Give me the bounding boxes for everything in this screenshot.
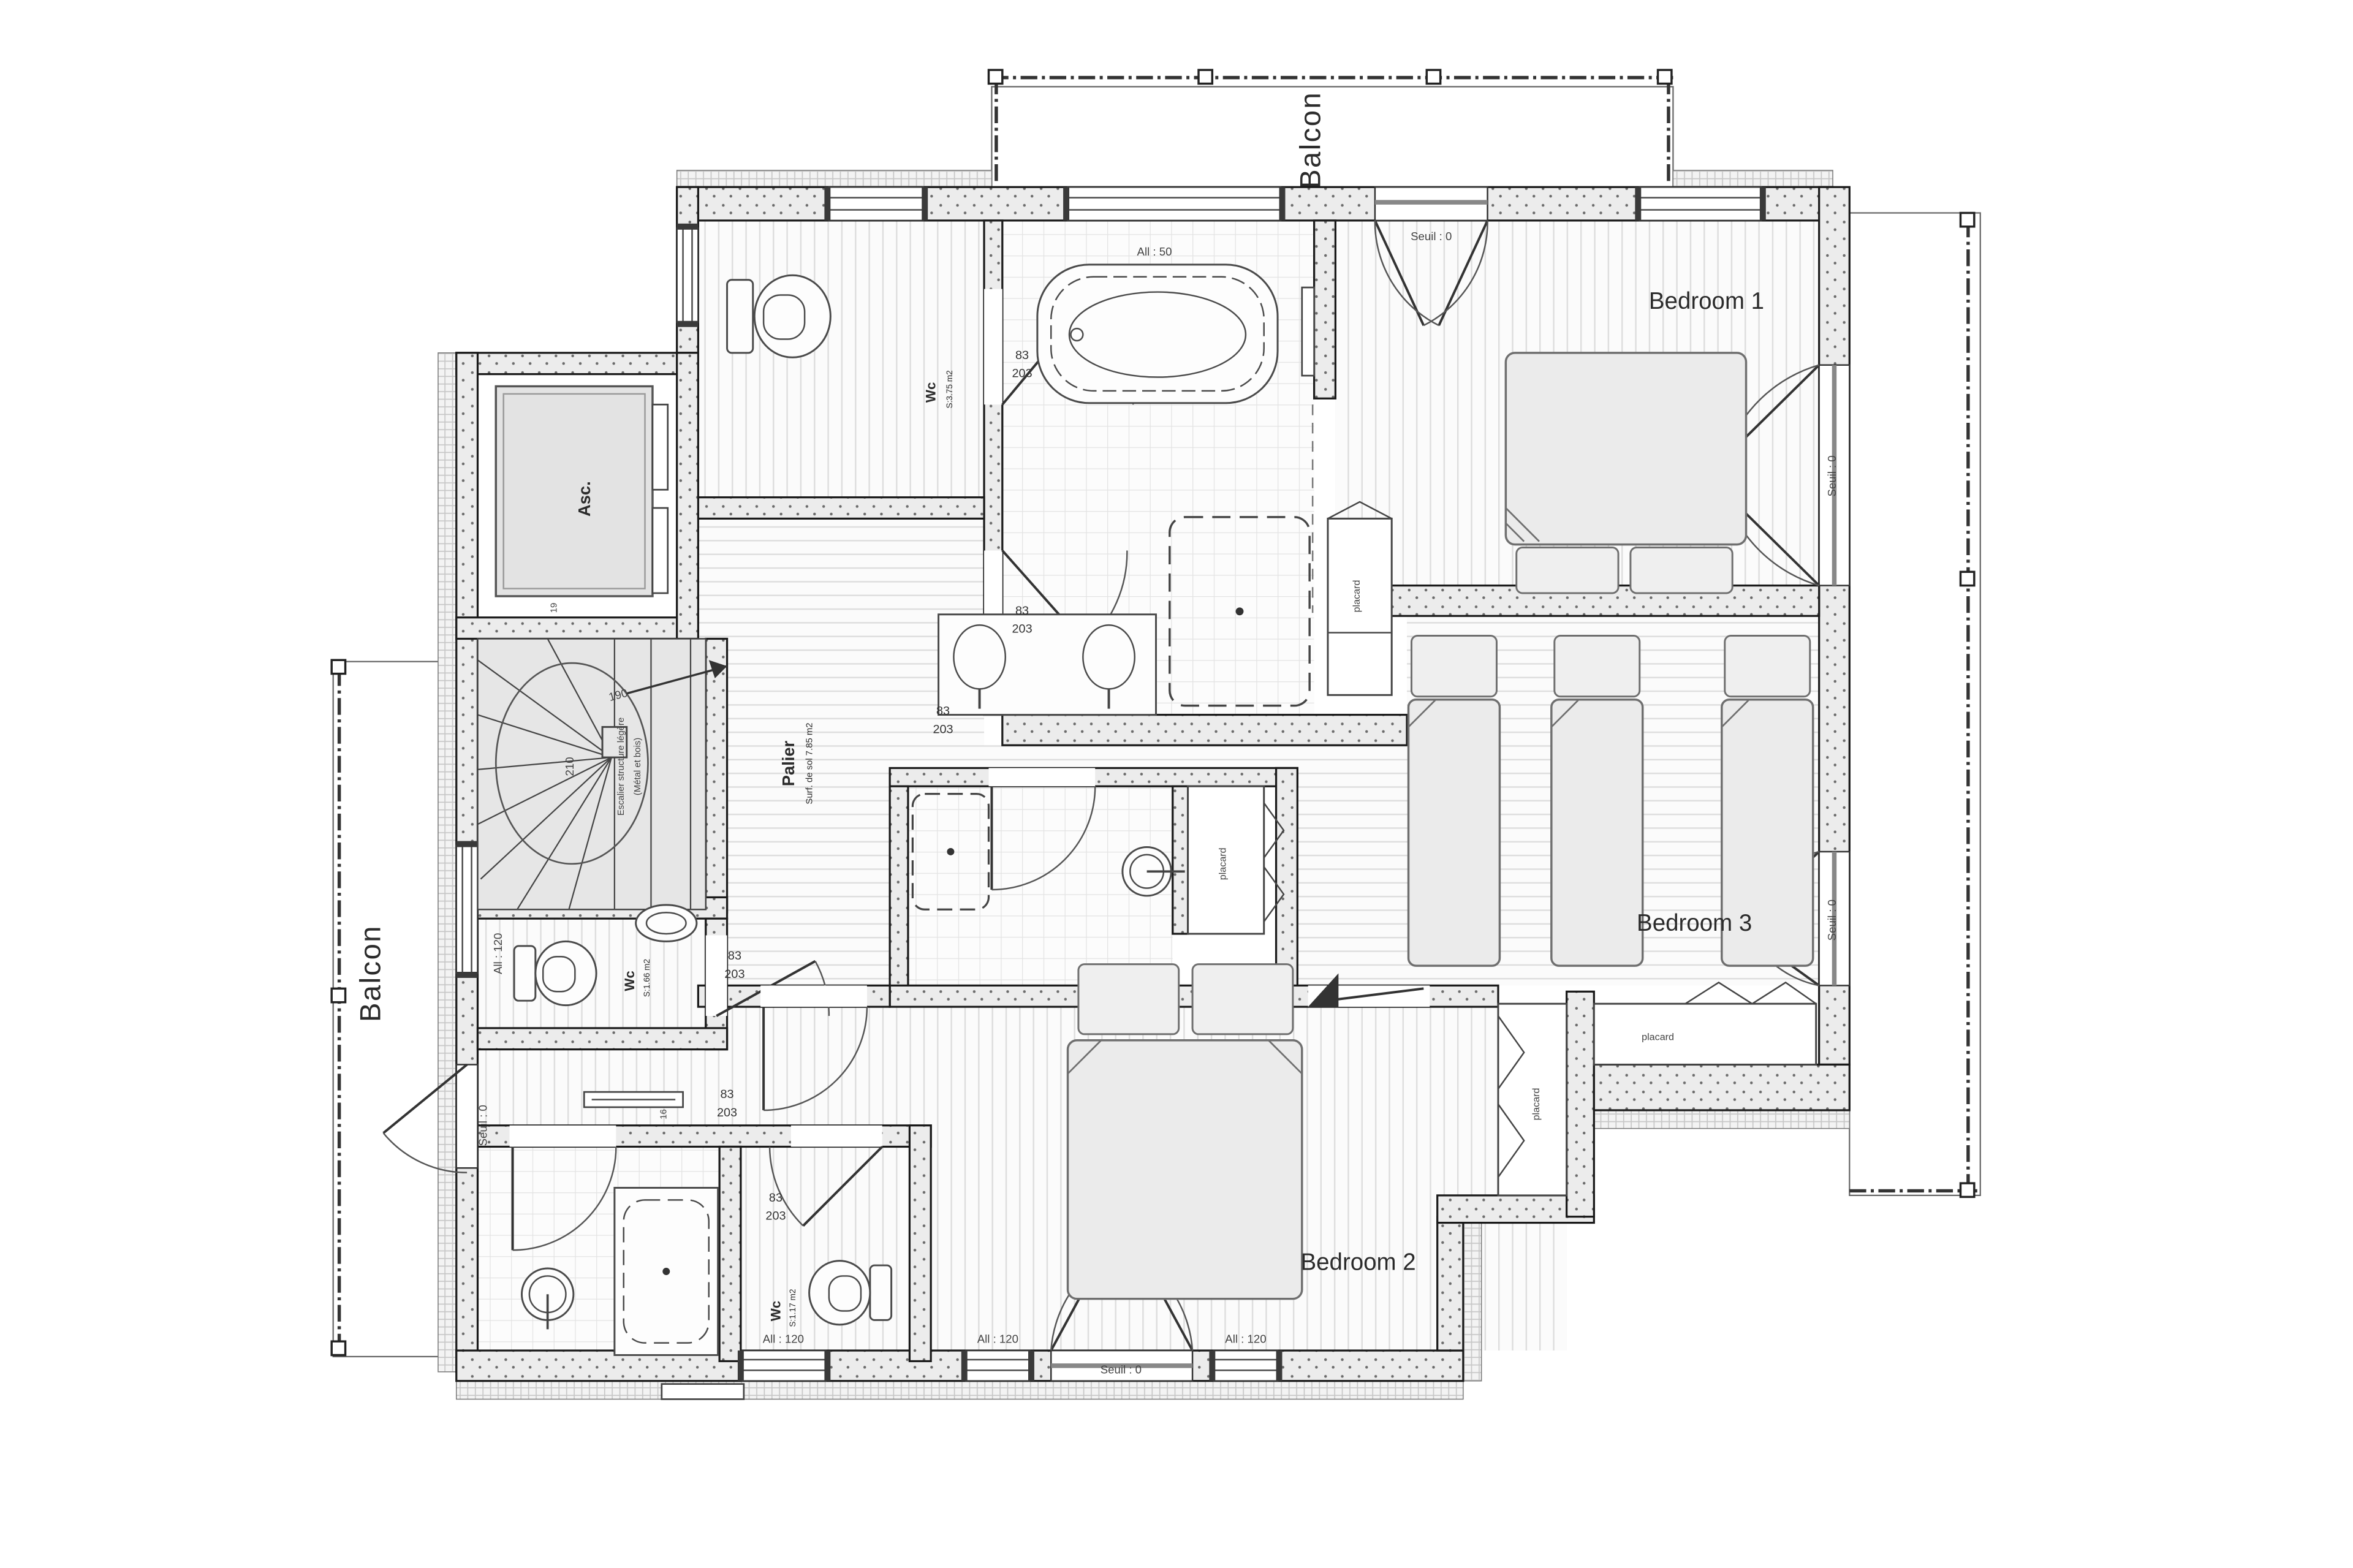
- stair-note-2: (Métal et bois): [633, 738, 643, 795]
- wc3-area: S:1.17 m2: [788, 1289, 797, 1327]
- single-bed-1: [1409, 635, 1500, 966]
- radiator: [662, 1384, 744, 1399]
- window: [457, 841, 478, 978]
- window: [677, 224, 699, 327]
- toilet-wc1: [727, 275, 831, 357]
- pillow: [1725, 635, 1810, 696]
- threshold-top: Seuil : 0: [1411, 230, 1452, 243]
- bathtub-drain: [662, 1268, 670, 1275]
- railing-post: [332, 660, 345, 673]
- bathtub-main: [1037, 265, 1278, 403]
- threshold-bottom: Seuil : 0: [1101, 1363, 1142, 1376]
- closet-label: placard: [1218, 847, 1229, 880]
- pillow: [1411, 635, 1496, 696]
- closet-label: placard: [1531, 1088, 1542, 1121]
- bedroom1-label: Bedroom 1: [1649, 288, 1764, 314]
- window: [1635, 187, 1765, 221]
- pillow: [1192, 964, 1293, 1034]
- shower-middle: [912, 794, 988, 910]
- closet-label: placard: [1351, 580, 1362, 613]
- stair-tread-19: 19: [550, 603, 559, 613]
- closet-label: placard: [1642, 1032, 1674, 1043]
- shower-drain: [947, 848, 954, 855]
- elevator-door: [653, 404, 668, 490]
- railing-post: [988, 70, 1002, 83]
- sill-120-b3: All : 120: [1225, 1333, 1266, 1346]
- palier-label: Palier: [779, 740, 798, 786]
- left-balcony-label: Balcon: [354, 925, 387, 1022]
- wc2-area: S:1.66 m2: [642, 959, 651, 997]
- pillow: [1517, 548, 1618, 593]
- railing-post: [1658, 70, 1672, 83]
- window: [824, 187, 928, 221]
- wc3-label: Wc: [768, 1301, 783, 1322]
- toilet-wc2: [514, 941, 596, 1005]
- dim-203: 203: [933, 722, 953, 736]
- towel-radiator: [1302, 287, 1314, 376]
- dim-83: 83: [769, 1191, 782, 1205]
- double-vanity: [939, 615, 1156, 715]
- dim-83: 83: [721, 1088, 734, 1101]
- elevator-label: Asc.: [575, 481, 594, 517]
- elevator-door: [653, 508, 668, 593]
- washbasin-wc2: [636, 905, 697, 942]
- threshold-right1: Seuil : 0: [1825, 455, 1838, 496]
- dim-203: 203: [717, 1106, 737, 1119]
- sill-120-left: All : 120: [491, 933, 504, 974]
- sill-120-b1: All : 120: [763, 1333, 804, 1346]
- floor-plan-page: Balcon Balcon: [0, 0, 2353, 1568]
- window: [1063, 187, 1285, 221]
- stair-rise: 210: [563, 757, 576, 776]
- window: [1209, 1350, 1282, 1381]
- pillow: [1631, 548, 1732, 593]
- pillow: [1555, 635, 1640, 696]
- wc1-area: S:3.75 m2: [945, 370, 954, 408]
- toilet-wc3: [809, 1261, 892, 1325]
- wc3-floor: [741, 1146, 910, 1361]
- window: [961, 1350, 1034, 1381]
- bathtub-2: [615, 1187, 718, 1355]
- wc1-label: Wc: [923, 382, 939, 403]
- railing-post: [1199, 70, 1212, 83]
- closet-bathroom: placard: [1328, 502, 1392, 695]
- closet-bedroom2: placard: [1498, 1004, 1567, 1195]
- threshold-left: Seuil : 0: [476, 1105, 489, 1146]
- railing-post: [1961, 213, 1974, 226]
- sill-120-b2: All : 120: [977, 1333, 1018, 1346]
- dim-203: 203: [724, 968, 745, 981]
- dim-83: 83: [1015, 604, 1029, 618]
- pillow: [1078, 964, 1179, 1034]
- walk-in-shower: [1170, 517, 1309, 706]
- dim-203: 203: [1012, 367, 1033, 381]
- railing-post: [332, 988, 345, 1002]
- dim-203: 203: [1012, 623, 1033, 636]
- sill-50: All : 50: [1137, 245, 1172, 258]
- wc1-floor: [698, 221, 984, 498]
- floor-plan-svg: Balcon Balcon: [0, 0, 2353, 1568]
- railing-post: [332, 1341, 345, 1355]
- shower-drain: [1236, 607, 1244, 615]
- stair-note-1: Escalier structure légère: [616, 718, 626, 816]
- railing-post: [1961, 572, 1974, 585]
- dim-83: 83: [1015, 349, 1029, 362]
- railing-post: [1961, 1183, 1974, 1197]
- palier-area: Surf. de sol 7.85 m2: [805, 722, 815, 804]
- single-bed-2: [1552, 635, 1643, 966]
- bedroom3-label: Bedroom 3: [1637, 910, 1752, 936]
- wc2-label: Wc: [622, 971, 637, 991]
- elevator: Asc. 19: [496, 386, 667, 613]
- bedroom2-label: Bedroom 2: [1301, 1249, 1416, 1276]
- stair-tread-16: 16: [659, 1109, 669, 1119]
- threshold-right2: Seuil : 0: [1825, 900, 1838, 941]
- dim-83: 83: [728, 949, 741, 963]
- palier-floor: [1297, 768, 1407, 985]
- railing-post: [1427, 70, 1440, 83]
- top-balcony-label: Balcon: [1294, 91, 1327, 189]
- window: [738, 1350, 830, 1381]
- dim-203: 203: [765, 1210, 786, 1223]
- dim-83: 83: [936, 705, 950, 718]
